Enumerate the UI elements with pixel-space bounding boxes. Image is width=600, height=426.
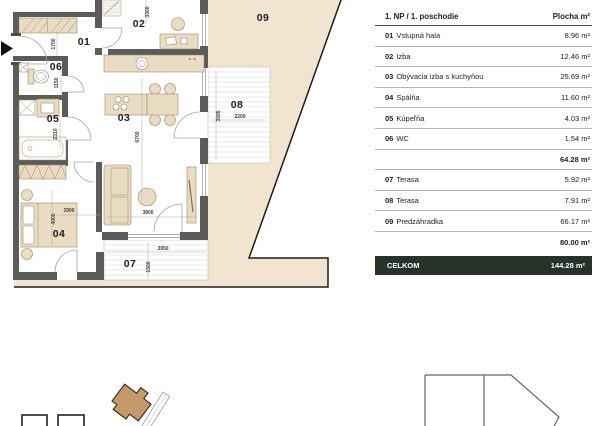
table-row: 08Terasa 7.91 m² bbox=[375, 191, 592, 212]
room-name: Terasa bbox=[396, 196, 419, 205]
dimension-label: 2310 bbox=[53, 128, 59, 139]
dimension-label: 3595 bbox=[216, 110, 222, 121]
room-area: 25.69 m² bbox=[560, 72, 590, 81]
kitchen-counter bbox=[104, 55, 204, 72]
washing-machine bbox=[19, 100, 35, 115]
dimension-label: 3800 bbox=[142, 210, 153, 216]
site-plan bbox=[22, 379, 170, 426]
toilet bbox=[19, 63, 49, 84]
room-number: 04 bbox=[385, 93, 393, 102]
room-number: 05 bbox=[385, 114, 393, 123]
bedside-table bbox=[22, 190, 33, 201]
wardrobe bbox=[19, 165, 66, 179]
table-row: 02Izba 12.46 m² bbox=[375, 47, 592, 68]
table-row: 07Terasa 5.92 m² bbox=[375, 170, 592, 191]
room-label-04: 04 bbox=[53, 228, 65, 240]
coffee-table bbox=[138, 188, 156, 206]
total-label: CELKOM bbox=[387, 261, 420, 270]
bedside-table bbox=[22, 249, 33, 260]
room-number: 03 bbox=[385, 72, 393, 81]
room-area: 5.92 m² bbox=[565, 175, 590, 184]
room-label-01: 01 bbox=[78, 36, 90, 48]
dimension-label: 1150 bbox=[54, 77, 60, 88]
room-number: 06 bbox=[385, 134, 393, 143]
site-building bbox=[22, 415, 47, 426]
site-building bbox=[58, 415, 84, 426]
dimension-label: 3950 bbox=[157, 246, 168, 252]
total-row: CELKOM 144.28 m² bbox=[375, 256, 592, 275]
room-number: 01 bbox=[385, 31, 393, 40]
staircase bbox=[102, 0, 121, 16]
entrance-arrow-icon bbox=[1, 41, 13, 56]
floor-plan: 3300 1700 1150 2310 6700 3595 2200 4000 … bbox=[0, 0, 372, 426]
dining-table bbox=[147, 84, 178, 126]
room-number: 09 bbox=[385, 217, 393, 226]
table-row: 09Predzáhradka 66.17 m² bbox=[375, 211, 592, 232]
dimension-label: 3300 bbox=[145, 6, 151, 17]
room-area: 12.46 m² bbox=[560, 52, 590, 61]
room-name: Spálňa bbox=[396, 93, 419, 102]
subtotal-area: 80.00 m² bbox=[560, 238, 590, 247]
room-name: Predzáhradka bbox=[396, 217, 443, 226]
room-name: Kúpeľňa bbox=[396, 114, 424, 123]
room-label-07: 07 bbox=[124, 258, 136, 270]
table-row: 06WC 1.54 m² bbox=[375, 129, 592, 150]
room-name: Terasa bbox=[396, 175, 419, 184]
dimension-label: 6700 bbox=[135, 131, 141, 142]
room-label-03: 03 bbox=[118, 112, 130, 124]
subtotal-row: 64.28 m² bbox=[375, 150, 592, 171]
terrace-07-deck bbox=[104, 240, 208, 280]
dimension-label: 1500 bbox=[146, 261, 152, 272]
room-label-06: 06 bbox=[50, 61, 62, 73]
room-area: 66.17 m² bbox=[560, 217, 590, 226]
area-column-header: Plocha m² bbox=[553, 12, 590, 21]
table-row: 04Spálňa 11.60 m² bbox=[375, 88, 592, 109]
room-name: Obývacia izba s kuchyňou bbox=[396, 72, 483, 81]
table-row: 05Kúpeľňa 4.03 m² bbox=[375, 108, 592, 129]
floor-plan-page: { "colors":{ "garden_fill":"#f1e4d0","fu… bbox=[0, 0, 600, 426]
room-label-05: 05 bbox=[47, 113, 59, 125]
desk bbox=[160, 18, 198, 50]
closet bbox=[19, 18, 77, 33]
room-name: Izba bbox=[396, 52, 410, 61]
sofa bbox=[104, 165, 131, 225]
room-area: 4.03 m² bbox=[565, 114, 590, 123]
dimension-label: 4000 bbox=[51, 213, 57, 224]
room-label-09: 09 bbox=[257, 12, 269, 24]
area-table: 1. NP / 1. poschodie Plocha m² 01Vstupná… bbox=[375, 8, 592, 275]
room-area: 7.91 m² bbox=[565, 196, 590, 205]
room-number: 02 bbox=[385, 52, 393, 61]
room-area: 11.60 m² bbox=[561, 93, 590, 102]
table-row: 03Obývacia izba s kuchyňou 25.69 m² bbox=[375, 67, 592, 88]
room-area: 8.96 m² bbox=[565, 31, 590, 40]
room-name: WC bbox=[396, 134, 409, 143]
room-name: Vstupná hala bbox=[396, 31, 440, 40]
dimension-label: 2200 bbox=[234, 114, 245, 120]
table-row: 01Vstupná hala 8.96 m² bbox=[375, 26, 592, 47]
subtotal-area: 64.28 m² bbox=[560, 155, 590, 164]
room-label-08: 08 bbox=[231, 99, 243, 111]
room-number: 07 bbox=[385, 175, 393, 184]
dimension-label: 2900 bbox=[63, 208, 74, 214]
total-area: 144.28 m² bbox=[551, 261, 585, 270]
room-label-02: 02 bbox=[133, 18, 145, 30]
tv-board bbox=[187, 167, 196, 223]
subtotal-row: 80.00 m² bbox=[375, 232, 592, 253]
table-header-row: 1. NP / 1. poschodie Plocha m² bbox=[375, 8, 592, 26]
dimension-label: 1700 bbox=[51, 38, 57, 49]
room-number: 08 bbox=[385, 196, 393, 205]
room-area: 1.54 m² bbox=[565, 134, 590, 143]
table-title: 1. NP / 1. poschodie bbox=[385, 12, 459, 21]
